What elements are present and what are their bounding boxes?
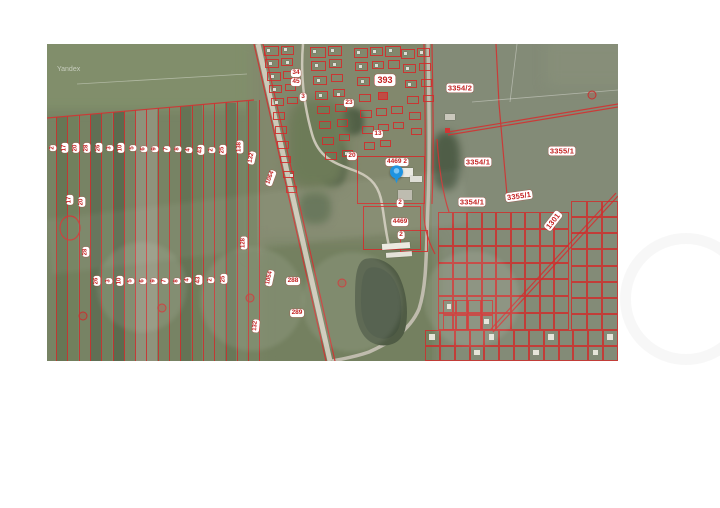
parcel-number-label: 7 — [163, 146, 170, 152]
parcel-number-label: 1301 — [543, 210, 563, 232]
listing-photo-page: Yandex 217202826310569784432251381321064… — [0, 0, 720, 508]
parcel-number-label: 9 — [151, 146, 158, 152]
parcel-number-label: 25 — [219, 145, 226, 155]
parcel-number-label: 8 — [174, 146, 181, 152]
parcel-number-label: 26 — [93, 276, 100, 286]
satellite-map[interactable]: Yandex 217202826310569784432251381321064… — [47, 44, 618, 361]
parcel-number-label: 23 — [344, 99, 354, 107]
parcel-number-label: 132 — [252, 319, 260, 333]
parcel-number-label: 45 — [291, 78, 301, 86]
parcel-number-label: 1054 — [265, 269, 275, 286]
parcel-number-label: 5 — [127, 278, 134, 284]
parcel-number-label: 132 — [247, 151, 257, 165]
parcel-number-label: 8 — [173, 278, 180, 284]
parcel-number-label: 4 — [185, 147, 192, 153]
parcel-number-label: 2 — [207, 277, 214, 283]
parcel-number-label: 138 — [236, 140, 243, 153]
parcel-number-label: 6 — [139, 278, 146, 284]
parcel-number-label: 5 — [129, 145, 136, 151]
parcel-number-label: 128 — [240, 236, 247, 249]
parcel-number-label: 43 — [195, 275, 202, 285]
parcel-number-label: 4469 — [391, 218, 408, 226]
parcel-number-label: 20 — [78, 197, 85, 207]
parcel-number-label: 4 — [184, 277, 191, 283]
parcel-number-label: 3354/1 — [464, 158, 491, 167]
parcel-number-label: 2 — [398, 231, 405, 239]
parcel-number-label: 7 — [161, 278, 168, 284]
parcel-number-label: 2 — [49, 145, 56, 151]
parcel-number-label: 26 — [95, 143, 102, 153]
parcel-number-label: 3 — [300, 93, 307, 101]
parcel-number-label: 43 — [197, 145, 204, 155]
parcel-number-label: 9 — [150, 278, 157, 284]
map-pin-tail — [394, 175, 400, 183]
parcel-number-label: 34 — [291, 69, 301, 77]
parcel-number-label: 2 — [397, 199, 404, 207]
parcel-number-label: 3354/1 — [458, 198, 485, 207]
parcel-number-label: 10 — [117, 143, 124, 153]
parcel-number-label: 3 — [106, 145, 113, 151]
parcel-number-label: 28 — [83, 143, 90, 153]
parcel-number-label: 1064 — [265, 169, 277, 187]
parcel-number-label: 289 — [290, 309, 304, 317]
parcel-number-label: 13 — [373, 130, 383, 138]
parcel-number-label: 288 — [286, 277, 300, 285]
parcel-number-label: 3355/1 — [548, 147, 575, 156]
parcel-number-label: 3354/2 — [446, 84, 473, 93]
parcel-labels-layer: 2172028263105697844322513813210642631056… — [47, 44, 618, 361]
parcel-number-label: 6 — [140, 146, 147, 152]
parcel-number-label: 3 — [105, 278, 112, 284]
parcel-number-label: 20 — [72, 143, 79, 153]
parcel-number-label: 3355/1 — [505, 190, 533, 203]
parcel-number-label: 10 — [116, 276, 123, 286]
parcel-number-label: 17 — [61, 143, 68, 153]
parcel-number-label: 20 — [347, 152, 357, 160]
parcel-number-label: 28 — [82, 247, 89, 257]
watermark-ring — [620, 233, 720, 365]
parcel-number-label: 2 — [208, 147, 215, 153]
parcel-number-label: 393 — [374, 74, 395, 86]
parcel-number-label: 17 — [66, 195, 73, 205]
parcel-number-label: 25 — [220, 274, 227, 284]
map-pin[interactable] — [390, 165, 404, 185]
